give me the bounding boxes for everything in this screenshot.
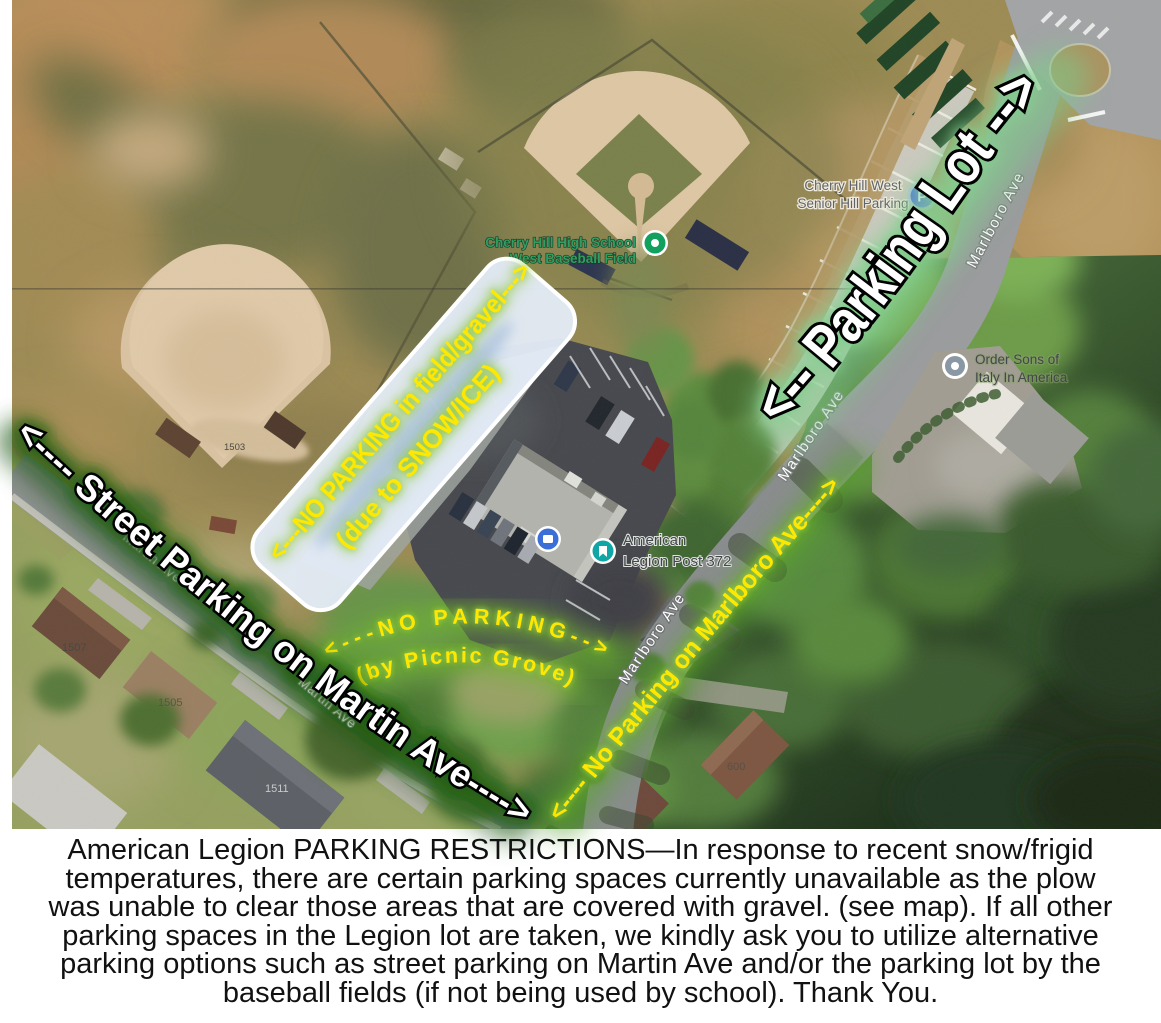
svg-text:Cherry Hill West: Cherry Hill West: [804, 178, 902, 193]
svg-text:1507: 1507: [62, 642, 86, 654]
svg-text:1503: 1503: [224, 442, 245, 453]
svg-text:1511: 1511: [265, 783, 289, 795]
svg-text:American: American: [623, 532, 686, 549]
svg-text:Italy In America: Italy In America: [975, 370, 1068, 385]
svg-text:1505: 1505: [158, 697, 182, 709]
svg-text:Order Sons of: Order Sons of: [975, 352, 1059, 367]
svg-text:West Baseball Field: West Baseball Field: [509, 251, 636, 266]
svg-text:Legion Post 372: Legion Post 372: [623, 553, 731, 570]
svg-text:600: 600: [727, 761, 745, 773]
svg-text:Cherry Hill High School: Cherry Hill High School: [485, 235, 636, 250]
